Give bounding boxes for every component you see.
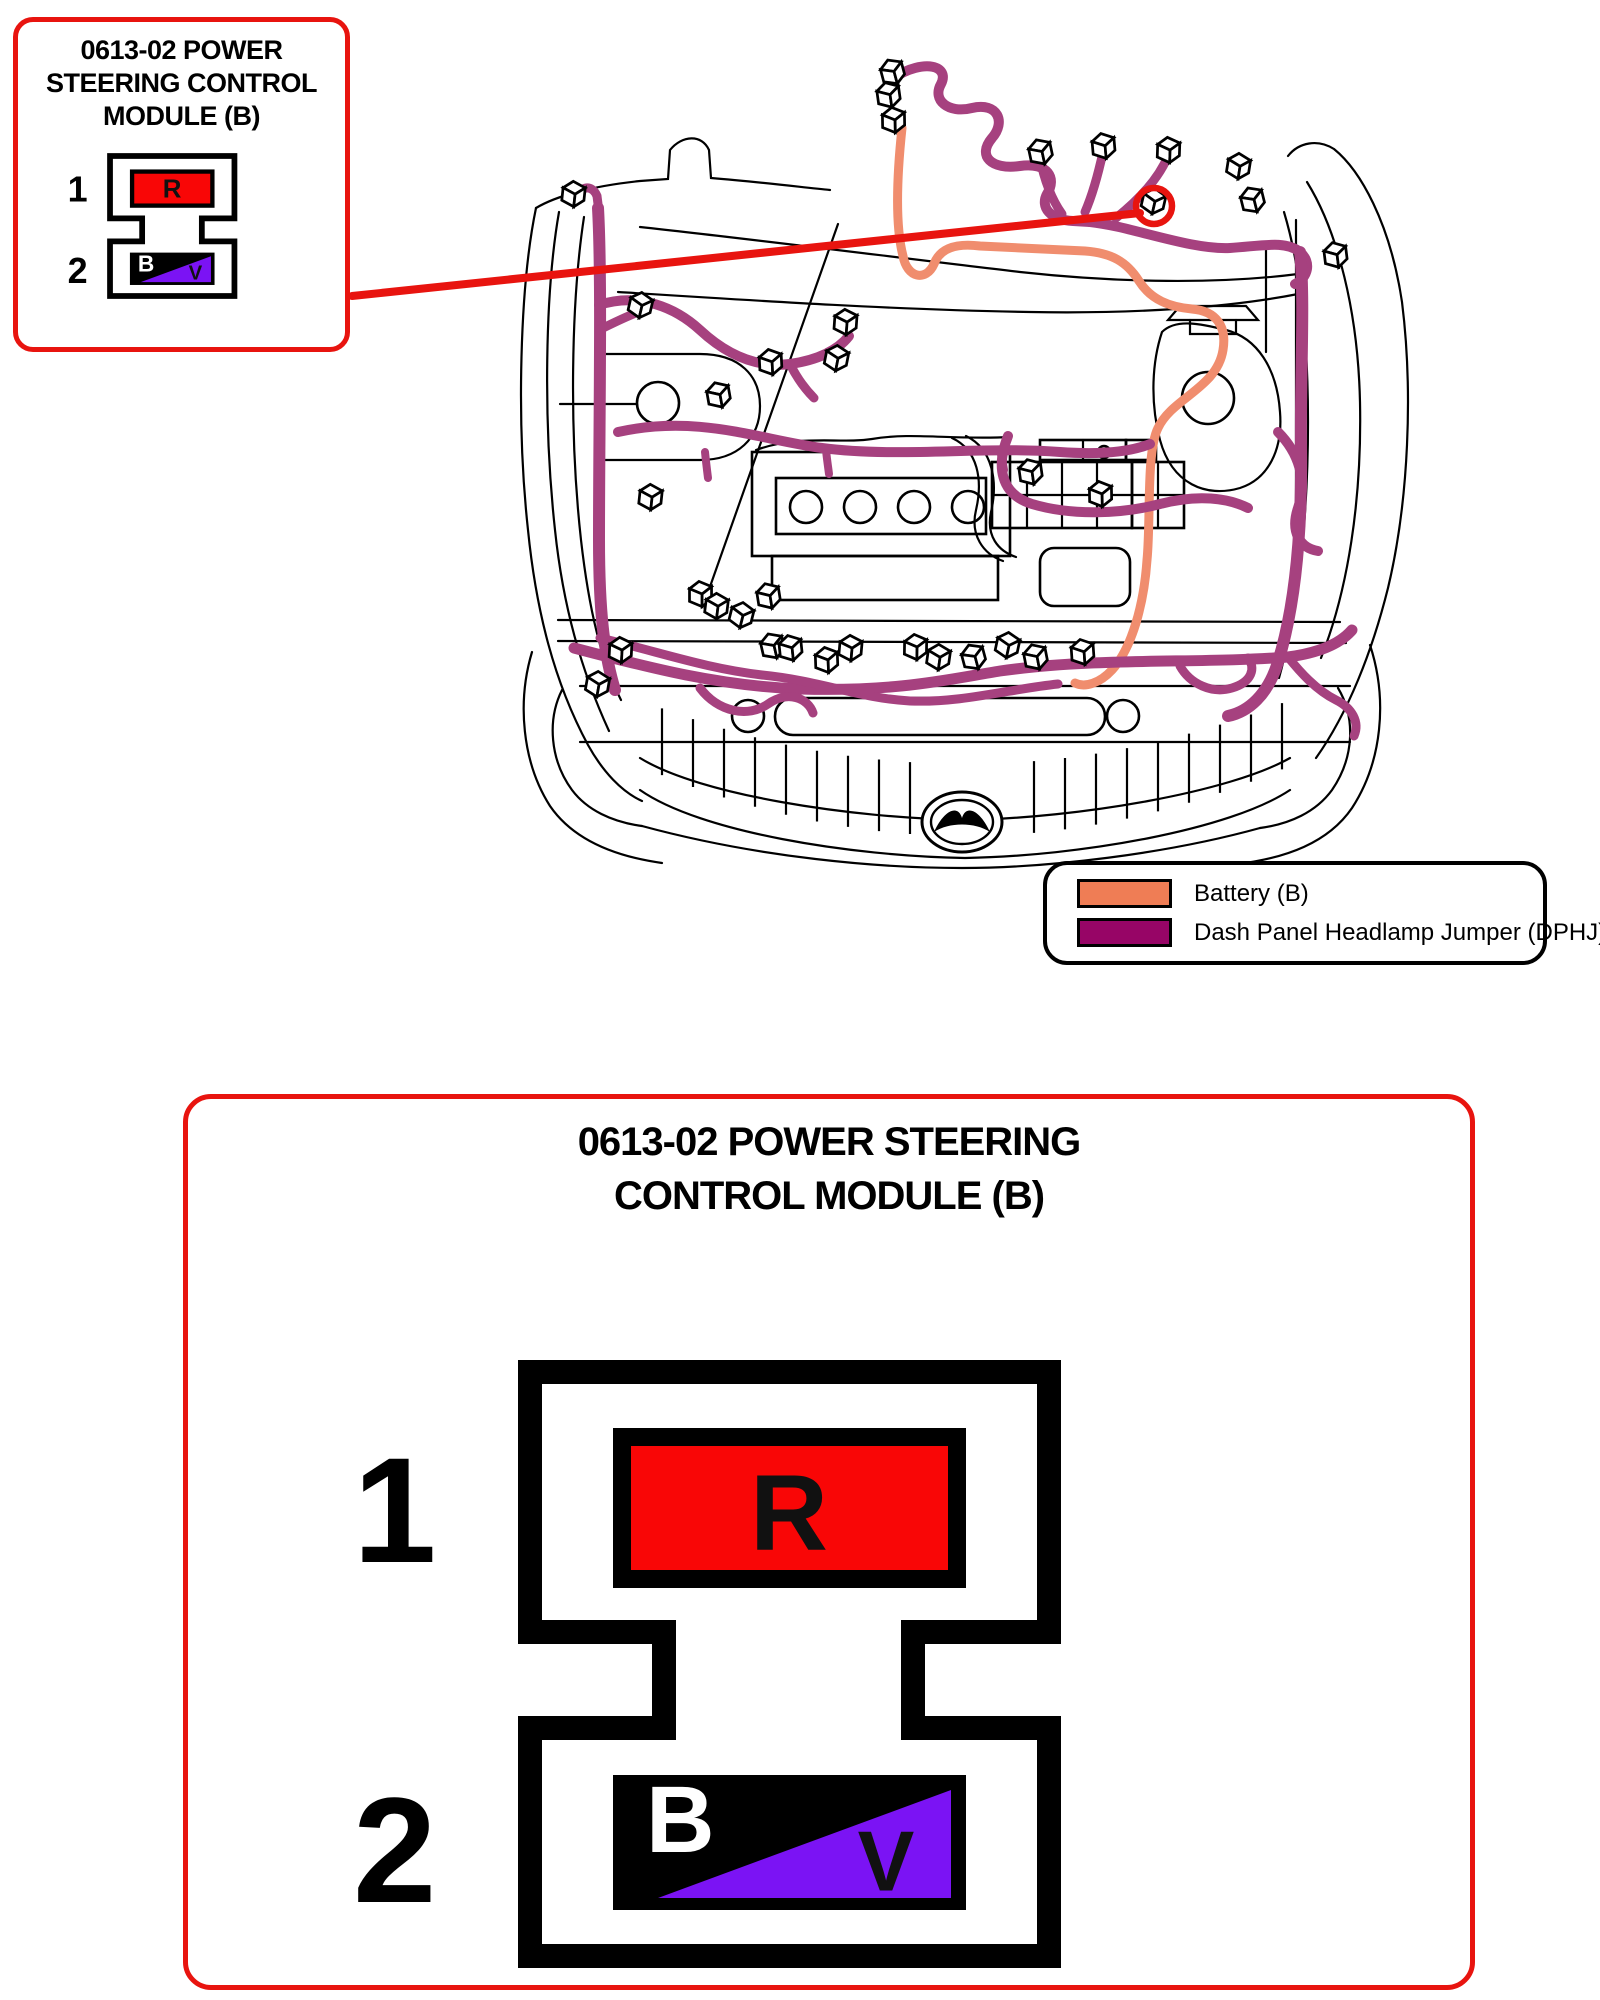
connector-cube-icon [882, 107, 904, 133]
dphj-harness-path [893, 66, 1090, 222]
dphj-harness-path [598, 208, 615, 690]
connector-cube-icon [759, 349, 782, 375]
pin2-letter-v: V [189, 262, 203, 284]
dphj-harness-path [790, 364, 814, 398]
engine-bay-harness-diagram [340, 30, 1440, 880]
body-line [558, 620, 1340, 622]
connector-cube-icon [1323, 241, 1348, 269]
callout-title-line: STEERING CONTROL [18, 67, 345, 100]
battery-color-swatch [1077, 879, 1172, 908]
pin-number-1: 1 [353, 1426, 436, 1594]
callout-title-line: 0613-02 POWER [18, 34, 345, 67]
body-line [553, 690, 642, 826]
connector-cube-icon [834, 309, 858, 336]
legend-label: Dash Panel Headlamp Jumper (DPHJ) [1194, 919, 1600, 947]
component-circle [1107, 700, 1139, 732]
pin1-letter: R [163, 176, 182, 204]
connector-cube-icon [876, 81, 901, 109]
connector-cube-icon [1226, 152, 1252, 180]
connector-cube-icon [994, 630, 1021, 659]
connector-cube-icon [1239, 185, 1266, 215]
component-circle [844, 491, 876, 523]
connector-cube-icon [728, 600, 755, 630]
detail-title-line: 0613-02 POWER STEERING [188, 1115, 1470, 1169]
connector-cube-icon [1157, 137, 1180, 163]
dphj-harness-path [1288, 657, 1356, 736]
legend-label: Battery (B) [1194, 880, 1309, 908]
connector-cube-icon [1027, 137, 1054, 166]
legend-row-battery: Battery (B) [1077, 879, 1543, 908]
connector-cube-icon [638, 483, 663, 510]
connector-cube-icon [1089, 481, 1111, 507]
component-circle [898, 491, 930, 523]
body-line [558, 641, 1346, 643]
pin-number-1: 1 [68, 169, 88, 210]
body-line [1260, 688, 1350, 828]
connector-cube-icon [705, 381, 731, 410]
pin2-letter-b: B [646, 1767, 715, 1873]
component-circle [790, 491, 822, 523]
pin-number-2: 2 [68, 250, 88, 291]
pin2-letter-v: V [858, 1815, 915, 1910]
detail-title-line: CONTROL MODULE (B) [188, 1169, 1470, 1223]
component-outline [772, 556, 998, 600]
connector-cube-icon [756, 582, 782, 610]
callout-title-line: MODULE (B) [18, 100, 345, 133]
pin-number-2: 2 [353, 1766, 436, 1934]
detail-title: 0613-02 POWER STEERING CONTROL MODULE (B… [188, 1115, 1470, 1223]
dphj-color-swatch [1077, 918, 1172, 947]
pin1-letter: R [750, 1452, 828, 1573]
body-line [706, 224, 838, 598]
dphj-harness-path [705, 452, 708, 478]
connector-cube-icon [926, 643, 951, 671]
legend-row-dphj: Dash Panel Headlamp Jumper (DPHJ) [1077, 918, 1543, 947]
connector-diagram-large: 1 2 R B V [288, 1360, 1068, 1968]
dphj-harness-path [826, 450, 829, 474]
legend-box: Battery (B) Dash Panel Headlamp Jumper (… [1043, 861, 1547, 965]
connector-cube-icon [609, 637, 632, 663]
component-outline [1040, 548, 1130, 606]
component-circle [637, 382, 679, 424]
pin2-letter-b: B [138, 251, 154, 277]
dphj-harness-path [1085, 152, 1103, 212]
connector-diagram-small: 1 2 R B V [52, 153, 239, 299]
connector-cube-icon [838, 635, 862, 662]
component-outline [776, 478, 986, 534]
connector-cube-icon [904, 634, 926, 660]
connector-cube-icon [960, 642, 988, 672]
connector-cube-icon [879, 57, 907, 87]
component-circle [952, 491, 984, 523]
callout-leader-line [352, 213, 1140, 296]
callout-title: 0613-02 POWER STEERING CONTROL MODULE (B… [18, 34, 345, 133]
wiring-diagram-page: 0613-02 POWER STEERING CONTROL MODULE (B… [0, 0, 1600, 2000]
dphj-harness-path [1090, 222, 1307, 284]
connector-cube-icon [1091, 132, 1115, 159]
connector-cube-icon [815, 647, 838, 673]
